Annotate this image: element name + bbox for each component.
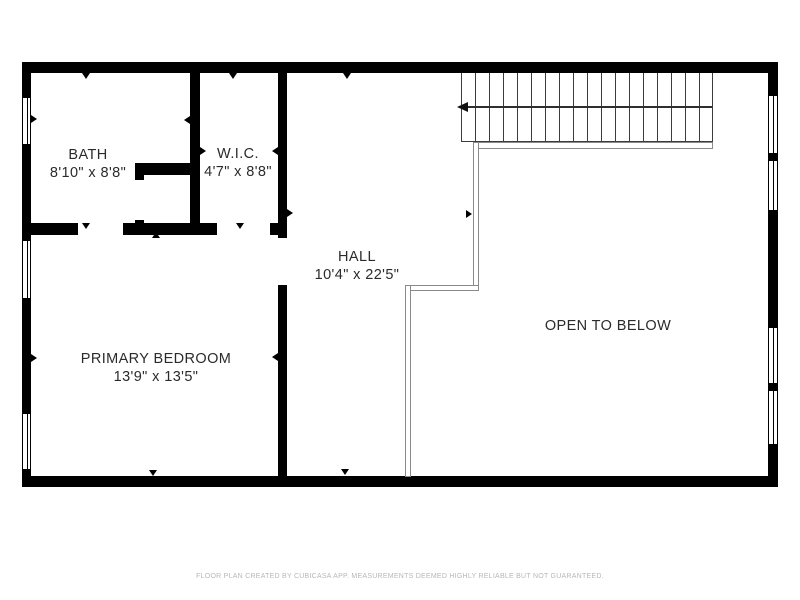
room-label-hall: HALL 10'4" x 22'5" [315, 248, 400, 284]
wall-shower-left-lower [135, 220, 144, 235]
footer-disclaimer: FLOOR PLAN CREATED BY CUBICASA APP. MEAS… [0, 573, 800, 580]
wall-marker-icon [343, 73, 351, 79]
door-marker-icon [236, 223, 244, 229]
wall-marker-icon [272, 147, 278, 155]
door-marker-icon [82, 223, 90, 229]
wall-marker-icon [152, 232, 160, 238]
room-name: PRIMARY BEDROOM [81, 350, 232, 368]
wall-exterior-bottom [22, 476, 778, 487]
wall-bedroom-hall-lower [278, 285, 287, 476]
room-dims: 13'9" x 13'5" [81, 368, 232, 386]
stair-direction-arrow-icon [457, 102, 468, 112]
wall-marker-icon [31, 354, 37, 362]
window-right-upper-pane2 [768, 160, 778, 211]
room-name: OPEN TO BELOW [545, 317, 671, 335]
room-label-bath: BATH 8'10" x 8'8" [50, 146, 126, 182]
room-dims: 4'7" x 8'8" [204, 163, 272, 181]
room-label-primary-bedroom: PRIMARY BEDROOM 13'9" x 13'5" [81, 350, 232, 386]
room-dims: 10'4" x 22'5" [315, 266, 400, 284]
room-name: BATH [50, 146, 126, 164]
wall-marker-icon [31, 115, 37, 123]
wall-marker-icon [229, 73, 237, 79]
room-label-wic: W.I.C. 4'7" x 8'8" [204, 145, 272, 181]
stairwell-railing-vertical-lower [405, 285, 411, 477]
wall-marker-icon [341, 469, 349, 475]
wall-marker-icon [272, 353, 278, 361]
wall-shower-top [135, 163, 200, 175]
room-name: HALL [315, 248, 400, 266]
wall-bath-bottom-left [31, 223, 78, 235]
room-label-open-to-below: OPEN TO BELOW [545, 317, 671, 335]
wall-marker-icon [184, 116, 190, 124]
window-right-upper-pane1 [768, 95, 778, 154]
stair-direction-line [466, 106, 712, 108]
window-bedroom-left-lower [22, 413, 31, 470]
window-bath-left [22, 97, 31, 145]
wall-marker-icon [149, 470, 157, 476]
wall-marker-icon [287, 209, 293, 217]
wall-marker-icon [466, 210, 472, 218]
floor-plan-canvas: BATH 8'10" x 8'8" W.I.C. 4'7" x 8'8" HAL… [0, 0, 800, 600]
wall-shower-left-upper [135, 163, 144, 180]
stairwell-railing-vertical-upper [473, 142, 479, 291]
stairwell-railing-horizontal [405, 285, 479, 291]
wall-marker-icon [82, 73, 90, 79]
window-right-lower-pane2 [768, 390, 778, 445]
wall-hall-upper [278, 73, 287, 238]
staircase [461, 73, 713, 142]
stairwell-railing-under-stairs [473, 142, 713, 149]
wall-exterior-top [22, 62, 778, 73]
room-dims: 8'10" x 8'8" [50, 164, 126, 182]
window-bedroom-left-upper [22, 240, 31, 299]
room-name: W.I.C. [204, 145, 272, 163]
window-right-lower-pane1 [768, 327, 778, 384]
wall-bath-wic [190, 73, 200, 235]
